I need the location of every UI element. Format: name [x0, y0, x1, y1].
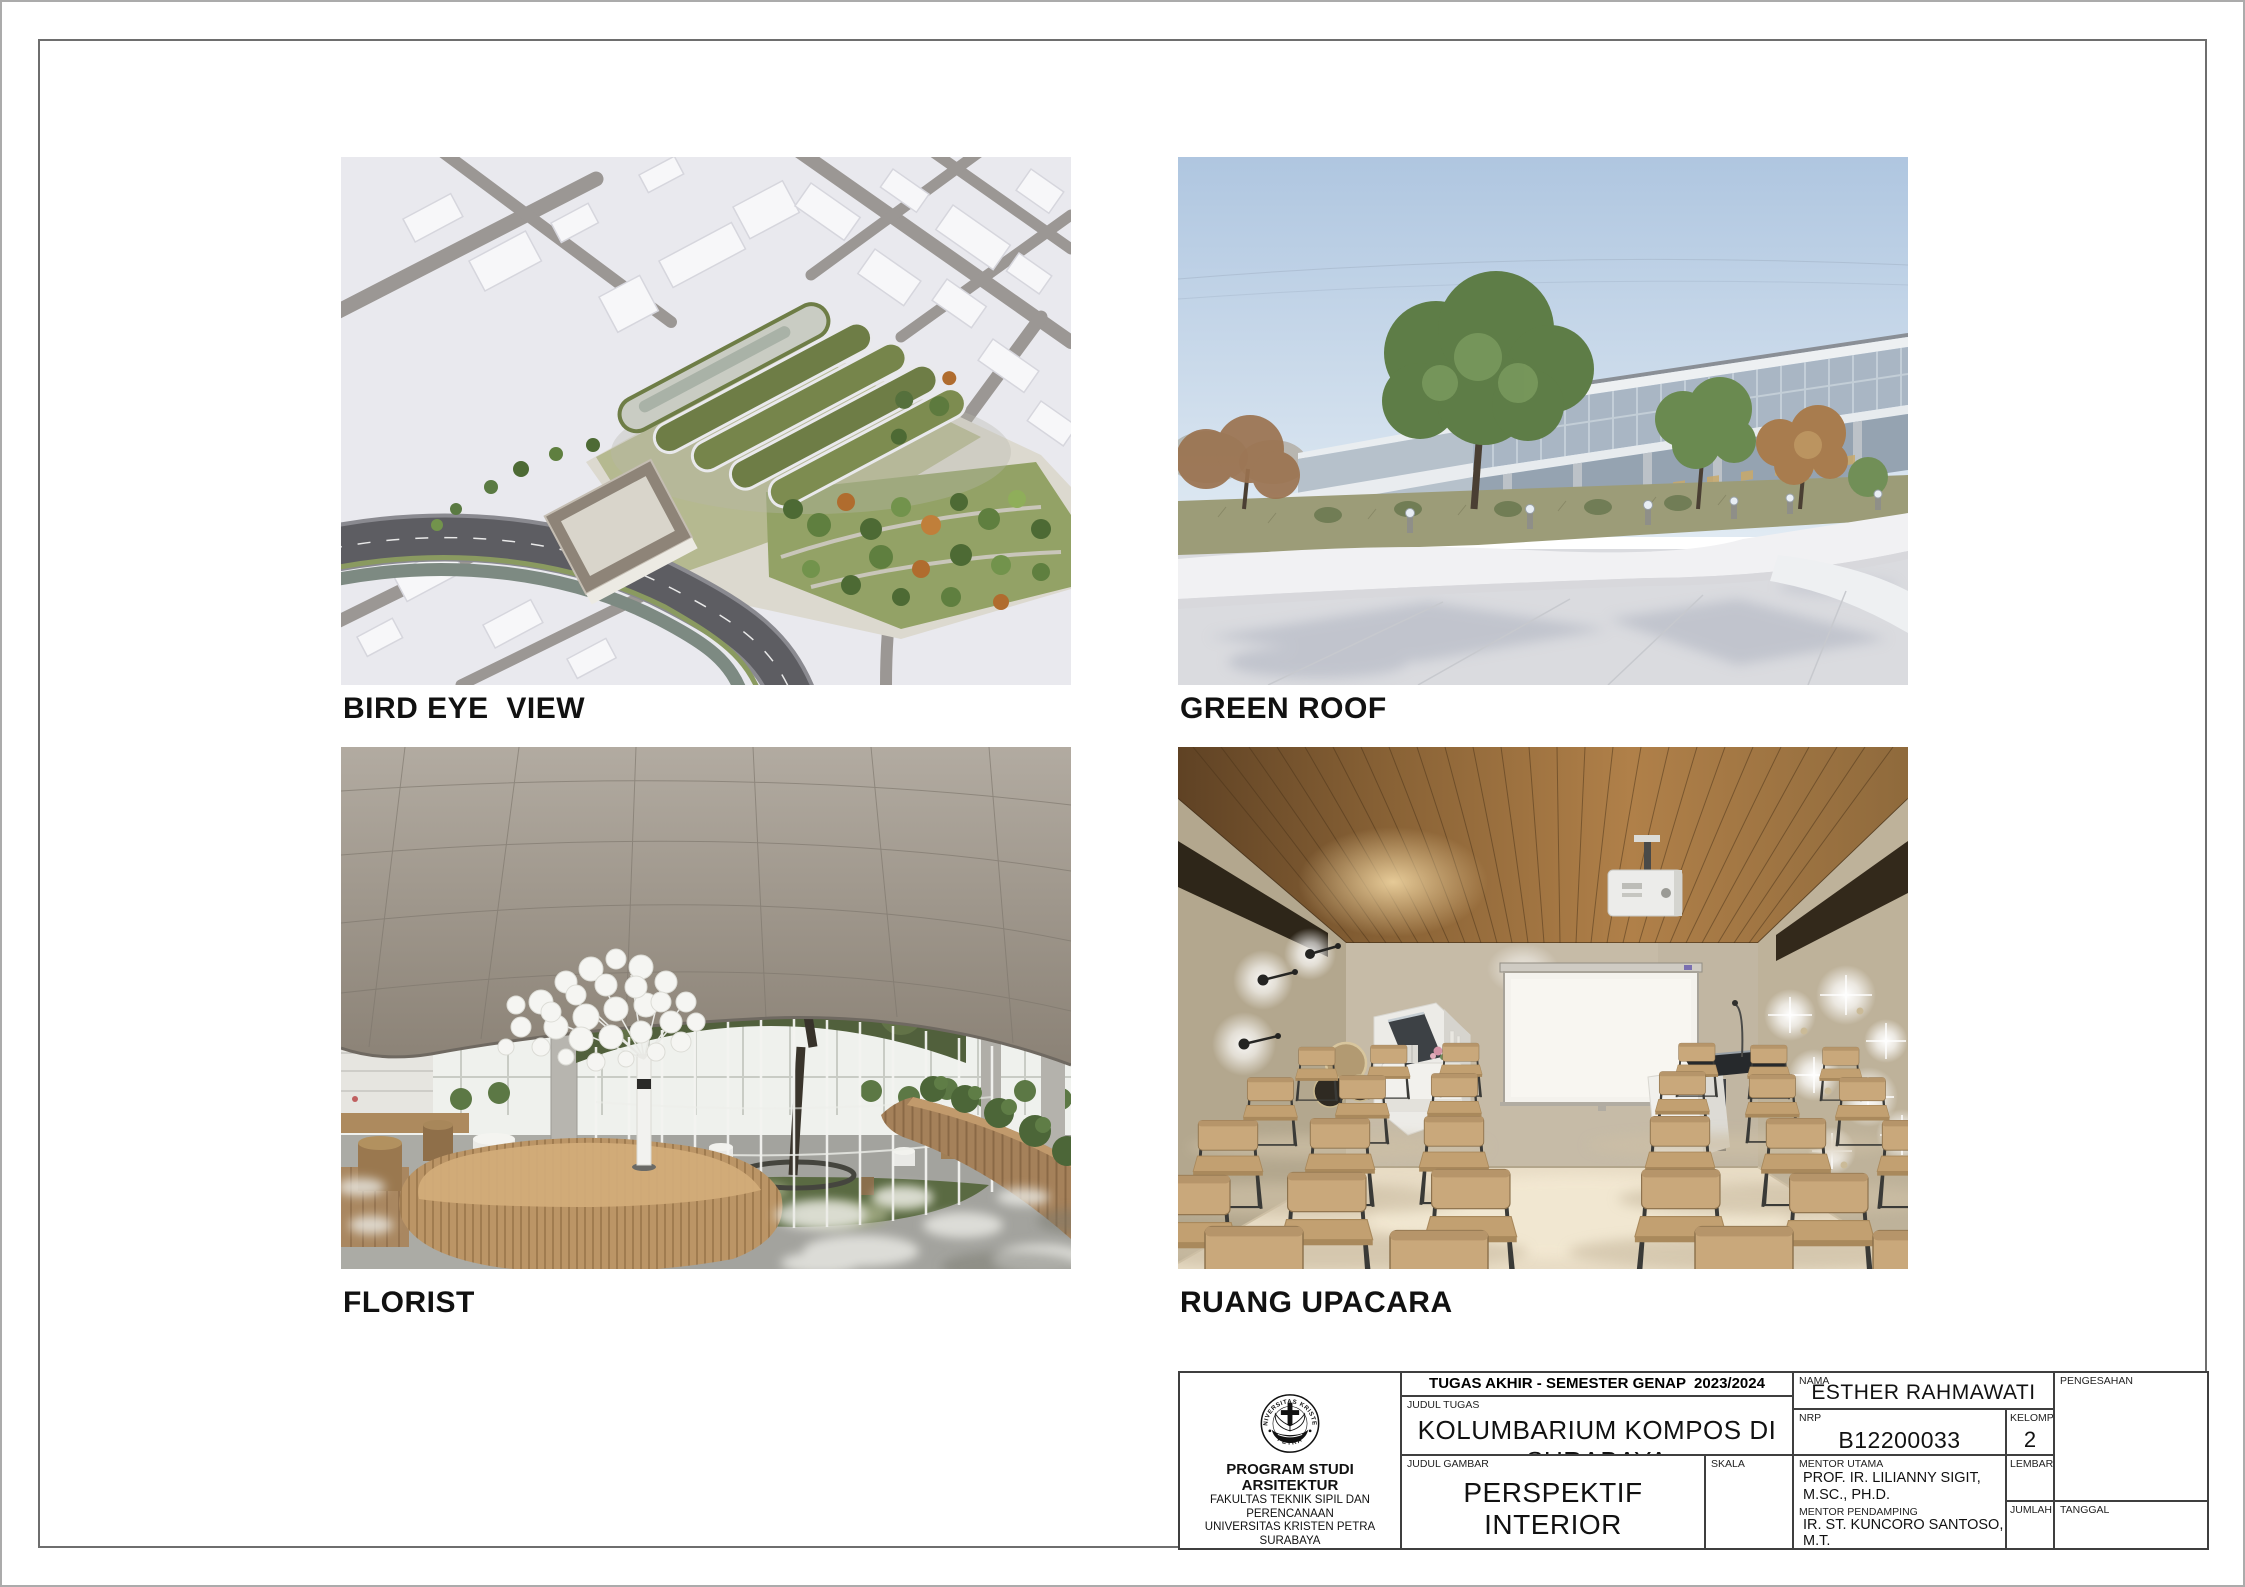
pengesahan-cell: PENGESAHAN: [2055, 1373, 2209, 1502]
institution-city: SURABAYA: [1260, 1535, 1321, 1549]
kelompok-cell: KELOMPOK 2: [2007, 1410, 2055, 1456]
mentor-pendamping-name: ANIK JUNIWATI, S.T., M.T.: [1794, 1549, 2005, 1550]
tanggal-label: TANGGAL: [2055, 1502, 2207, 1516]
florist-render: [341, 747, 1071, 1269]
wood-counter: [399, 1138, 782, 1269]
judul-tugas-cell: JUDUL TUGAS KOLUMBARIUM KOMPOS DI SURABA…: [1402, 1397, 1794, 1456]
pengesahan-label: PENGESAHAN: [2055, 1373, 2207, 1387]
caption-green-roof: GREEN ROOF: [1180, 694, 1387, 724]
jumlah-label: JUMLAH: [2007, 1502, 2053, 1516]
mentor-cell: MENTOR UTAMA PROF. IR. LILIANNY SIGIT, M…: [1794, 1456, 2007, 1550]
lembar-cell: LEMBAR: [2007, 1456, 2055, 1502]
judul-tugas-value: KOLUMBARIUM KOMPOS DI SURABAYA: [1402, 1415, 1792, 1456]
judul-gambar-cell: JUDUL GAMBAR PERSPEKTIF INTERIOR: [1402, 1456, 1706, 1550]
skala-label: SKALA: [1706, 1456, 1792, 1470]
figure-florist: [341, 747, 1071, 1269]
mentor-pendamping-name: IR. ST. KUNCORO SANTOSO, M.T.: [1794, 1518, 2005, 1549]
kelompok-value: 2: [2007, 1427, 2053, 1453]
ruang-upacara-render: [1178, 747, 1908, 1269]
assignment-header: TUGAS AKHIR - SEMESTER GENAP 2023/2024: [1402, 1373, 1792, 1394]
nrp-cell: NRP B12200033: [1794, 1410, 2007, 1456]
mentor-utama-label: MENTOR UTAMA: [1794, 1456, 2005, 1470]
institution-university: UNIVERSITAS KRISTEN PETRA: [1205, 1521, 1375, 1535]
green-roof-render: [1178, 157, 1908, 685]
mentor-utama-name: PROF. IR. LILIANNY SIGIT, M.SC., PH.D.: [1794, 1470, 2005, 1504]
judul-gambar-label: JUDUL GAMBAR: [1402, 1456, 1704, 1470]
tanggal-cell: TANGGAL: [2055, 1502, 2209, 1550]
caption-bird-eye-view: BIRD EYE VIEW: [343, 694, 585, 724]
institution-program: PROGRAM STUDI ARSITEKTUR: [1180, 1462, 1400, 1494]
figure-green-roof: [1178, 157, 1908, 685]
nama-value: ESTHER RAHMAWATI: [1794, 1381, 2053, 1405]
nrp-value: B12200033: [1794, 1427, 2005, 1454]
kelompok-label: KELOMPOK: [2007, 1410, 2053, 1424]
nama-cell: NAMA ESTHER RAHMAWATI: [1794, 1373, 2055, 1410]
judul-tugas-label: JUDUL TUGAS: [1402, 1397, 1792, 1411]
lembar-label: LEMBAR: [2007, 1456, 2053, 1470]
nrp-label: NRP: [1794, 1410, 2005, 1424]
header-cell: TUGAS AKHIR - SEMESTER GENAP 2023/2024: [1402, 1373, 1794, 1397]
perforated-ceiling: [341, 747, 1071, 1065]
title-block: UNIVERSITAS KRISTEN PETRA PROGRAM STUDI …: [1178, 1371, 2209, 1550]
caption-ruang-upacara: RUANG UPACARA: [1180, 1288, 1453, 1318]
judul-gambar-value: PERSPEKTIF INTERIOR: [1402, 1477, 1704, 1541]
presentation-sheet: BIRD EYE VIEW GREEN ROOF FLORIST RUANG U…: [0, 0, 2245, 1587]
skala-cell: SKALA: [1706, 1456, 1794, 1550]
institution-cell: UNIVERSITAS KRISTEN PETRA PROGRAM STUDI …: [1180, 1373, 1402, 1550]
petra-university-seal-icon: UNIVERSITAS KRISTEN PETRA: [1247, 1393, 1333, 1454]
caption-florist: FLORIST: [343, 1288, 475, 1318]
institution-faculty: FAKULTAS TEKNIK SIPIL DAN PERENCANAAN: [1180, 1494, 1400, 1521]
mentor-pendamping-label: MENTOR PENDAMPING: [1794, 1504, 2005, 1518]
jumlah-cell: JUMLAH: [2007, 1502, 2055, 1550]
figure-ruang-upacara: [1178, 747, 1908, 1269]
figure-bird-eye-view: [341, 157, 1071, 685]
bird-eye-view-render: [341, 157, 1071, 685]
